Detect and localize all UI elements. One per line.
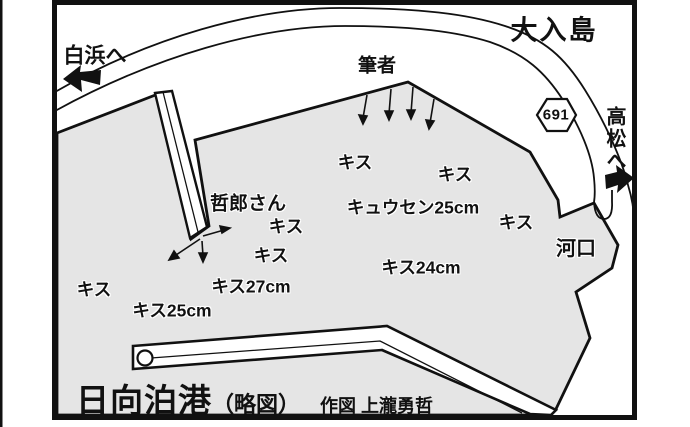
photo-edge-line (0, 0, 3, 427)
author-spot-label: 筆者 (358, 57, 396, 76)
to-takamatsu-label: 高松へ (604, 106, 624, 172)
to-shirahama-label: 白浜へ (64, 46, 127, 67)
fish-point-label: キス (77, 281, 111, 299)
fish-point-label: キス (438, 166, 472, 184)
map-title-row: 日向泊港 （略図） 作図 上瀧勇哲 (76, 374, 433, 418)
fish-point-label: キュウセン25cm (347, 199, 479, 217)
tetsuro-spot-label: 哲郎さん (210, 195, 286, 214)
route-badge-number: 691 (543, 108, 570, 123)
fish-point-label: キス24cm (381, 259, 460, 277)
fish-point-label: キス (269, 218, 303, 236)
fish-point-label: キス (499, 214, 533, 232)
fish-point-label: キス25cm (132, 302, 211, 320)
island-name-label: 大入島 (511, 18, 598, 45)
fishing-map: 白浜へ 大入島 筆者 691 高松へ 河口 哲郎さん キスキスキュウセン25cm… (0, 0, 690, 427)
fish-point-label: キス (254, 247, 288, 265)
port-name: 日向泊港 (76, 374, 212, 422)
harbour-light-icon (138, 351, 153, 366)
river-mouth-culvert (594, 190, 612, 219)
shirahama-arrow-icon (63, 65, 101, 92)
map-credit: 作図 上瀧勇哲 (320, 392, 433, 418)
map-type-suffix: （略図） (212, 387, 300, 419)
fish-point-label: キス (338, 154, 372, 172)
river-mouth-label: 河口 (556, 239, 596, 259)
fish-point-label: キス27cm (211, 278, 290, 296)
